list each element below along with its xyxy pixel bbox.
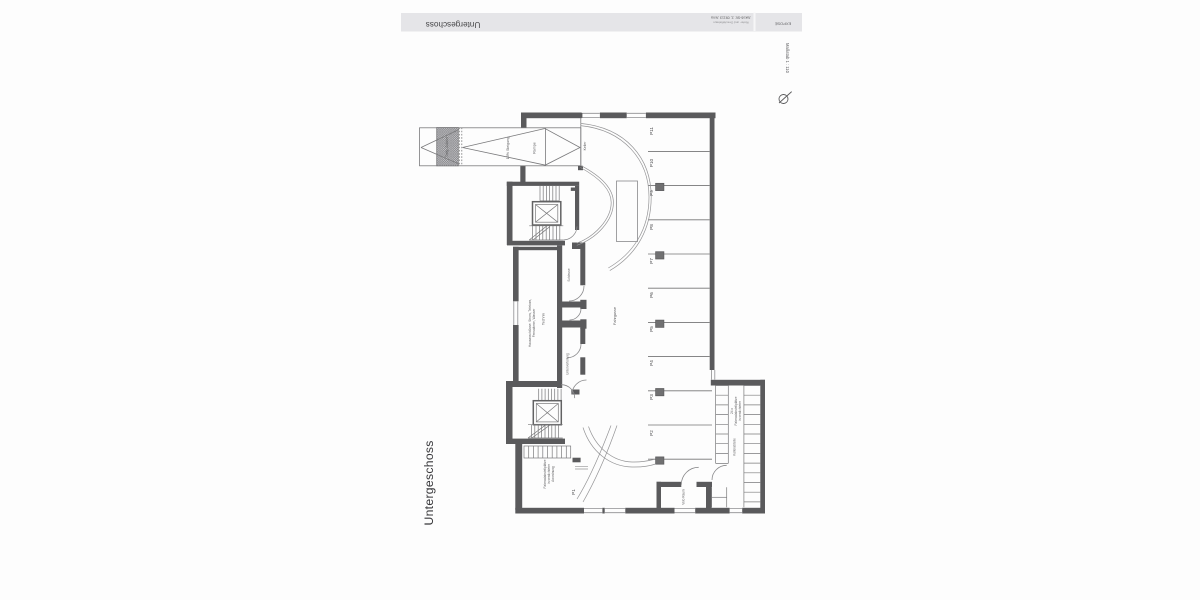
svg-text:Tiefg. Zufahrt: Tiefg. Zufahrt [445,137,449,157]
svg-text:15% Steigung: 15% Steigung [506,137,510,159]
svg-text:Rampe: Rampe [533,142,537,154]
svg-text:P7: P7 [649,258,654,264]
svg-text:in verdichteter: in verdichteter [738,400,742,421]
svg-text:Anordnung: Anordnung [551,466,555,482]
svg-text:Maßstab 1 : 110: Maßstab 1 : 110 [785,43,790,74]
svg-text:Kellerabteile: Kellerabteile [733,438,737,456]
svg-text:Velo Raum: Velo Raum [682,489,686,505]
svg-text:Schleuse: Schleuse [567,268,571,281]
svg-text:P11: P11 [649,127,654,135]
svg-text:P5: P5 [649,326,654,332]
svg-text:P4: P4 [649,360,654,366]
svg-text:EXPOSÉ: EXPOSÉ [774,22,791,27]
svg-text:P2: P2 [649,430,654,436]
svg-text:Unterverteilung: Unterverteilung [566,353,570,375]
svg-text:Technik: Technik [542,313,546,325]
svg-text:Keller: Keller [583,141,587,151]
svg-text:Wohn- und Geschäftshaus: Wohn- und Geschäftshaus [713,21,749,25]
svg-text:Jakob-Str. 2, 09113 Jena: Jakob-Str. 2, 09113 Jena [711,16,751,20]
svg-text:Untergeschoss: Untergeschoss [422,440,436,525]
svg-text:P8: P8 [649,224,654,230]
svg-text:P6: P6 [649,292,654,298]
svg-text:Fernwärme, Wasser: Fernwärme, Wasser [532,308,536,338]
svg-text:P1: P1 [571,489,576,495]
svg-text:Fahrgasse: Fahrgasse [613,307,617,325]
svg-text:P10: P10 [649,158,654,167]
svg-text:P3: P3 [649,394,654,400]
svg-text:Untergeschoss: Untergeschoss [426,20,481,29]
